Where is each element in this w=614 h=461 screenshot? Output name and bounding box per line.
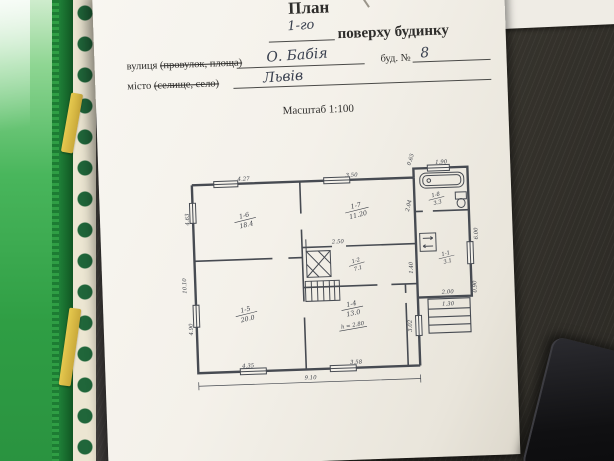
svg-text:9.10: 9.10 [305,375,318,381]
svg-text:h = 2.80: h = 2.80 [341,321,366,331]
scale-label: Масштаб 1:100 [268,102,368,117]
svg-text:4.63: 4.63 [185,213,191,227]
svg-text:2.04: 2.04 [405,199,414,214]
folder-spine [59,0,73,461]
svg-text:6.00: 6.00 [473,227,479,240]
room-label-1-4: 1-4 13.0 [340,298,365,320]
svg-text:4.90: 4.90 [189,323,195,337]
boiler-symbol [420,233,437,252]
floor-plan-drawing: 1-6 18.4 1-7 11.20 1-8 3.3 1-1 3.1 1-2 [177,145,486,407]
street-label-strikethrough: (провулок, площа) [160,58,243,72]
interior-walls [192,176,474,374]
room-label-1-1: 1-1 3.1 [437,249,456,266]
svg-text:3.50: 3.50 [345,173,358,179]
room-label-1-2: 1-2 7.1 [347,256,366,274]
room-label-1-8: 1-8 3.3 [427,191,446,208]
svg-text:3.58: 3.58 [350,359,363,365]
city-label-strikethrough: (селище, село) [154,78,220,91]
svg-text:2.00: 2.00 [441,289,455,295]
svg-text:0.65: 0.65 [406,153,416,167]
room-label-1-6: 1-6 18.4 [232,209,258,231]
stove-symbol [306,239,331,278]
svg-text:1-8: 1-8 [431,191,441,199]
svg-text:10.10: 10.10 [182,278,189,294]
svg-text:1.30: 1.30 [442,301,455,307]
city-label: місто (селище, село) [127,78,219,92]
house-number-handwritten: 8 [420,45,430,62]
photo-scene: План 1-го поверху будинку вулиця (провул… [0,0,614,461]
house-number-label: буд. № [380,53,411,65]
svg-text:13.0: 13.0 [346,308,362,319]
svg-text:1.90: 1.90 [435,159,448,165]
city-label-word: місто [127,81,151,93]
folder-serrated-edge [52,0,59,461]
toilet-symbol [455,192,467,208]
svg-text:3.3: 3.3 [433,199,443,207]
svg-text:4.27: 4.27 [237,176,251,182]
svg-text:3.1: 3.1 [443,258,453,266]
stairs-symbol [305,280,340,301]
svg-text:7.1: 7.1 [353,265,363,273]
paper-crease [348,0,369,7]
folder-polkadot-strip [73,0,96,461]
doc-title-rest: поверху будинку [337,22,449,43]
document-sheet: План 1-го поверху будинку вулиця (провул… [92,0,520,461]
svg-text:4.35: 4.35 [241,363,255,369]
svg-text:1-1: 1-1 [441,250,451,258]
green-folder [0,0,96,461]
floor-number-blank [268,23,335,42]
svg-text:1.40: 1.40 [409,261,415,274]
svg-text:2.50: 2.50 [331,239,345,245]
doc-title: План [272,0,345,19]
street-label: вулиця (провулок, площа) [126,58,242,73]
room-1-4-height-note: h = 2.80 [338,320,367,331]
room-label-1-5: 1-5 20.0 [234,303,260,325]
bathtub-symbol [420,172,464,189]
svg-text:20.0: 20.0 [239,313,256,324]
svg-text:3.02: 3.02 [408,319,414,332]
svg-text:0.90: 0.90 [472,280,478,293]
folder-glare [0,0,30,160]
room-label-1-7: 1-7 11.20 [343,199,371,222]
city-value-handwritten: Львів [263,68,304,87]
street-label-word: вулиця [126,60,157,72]
